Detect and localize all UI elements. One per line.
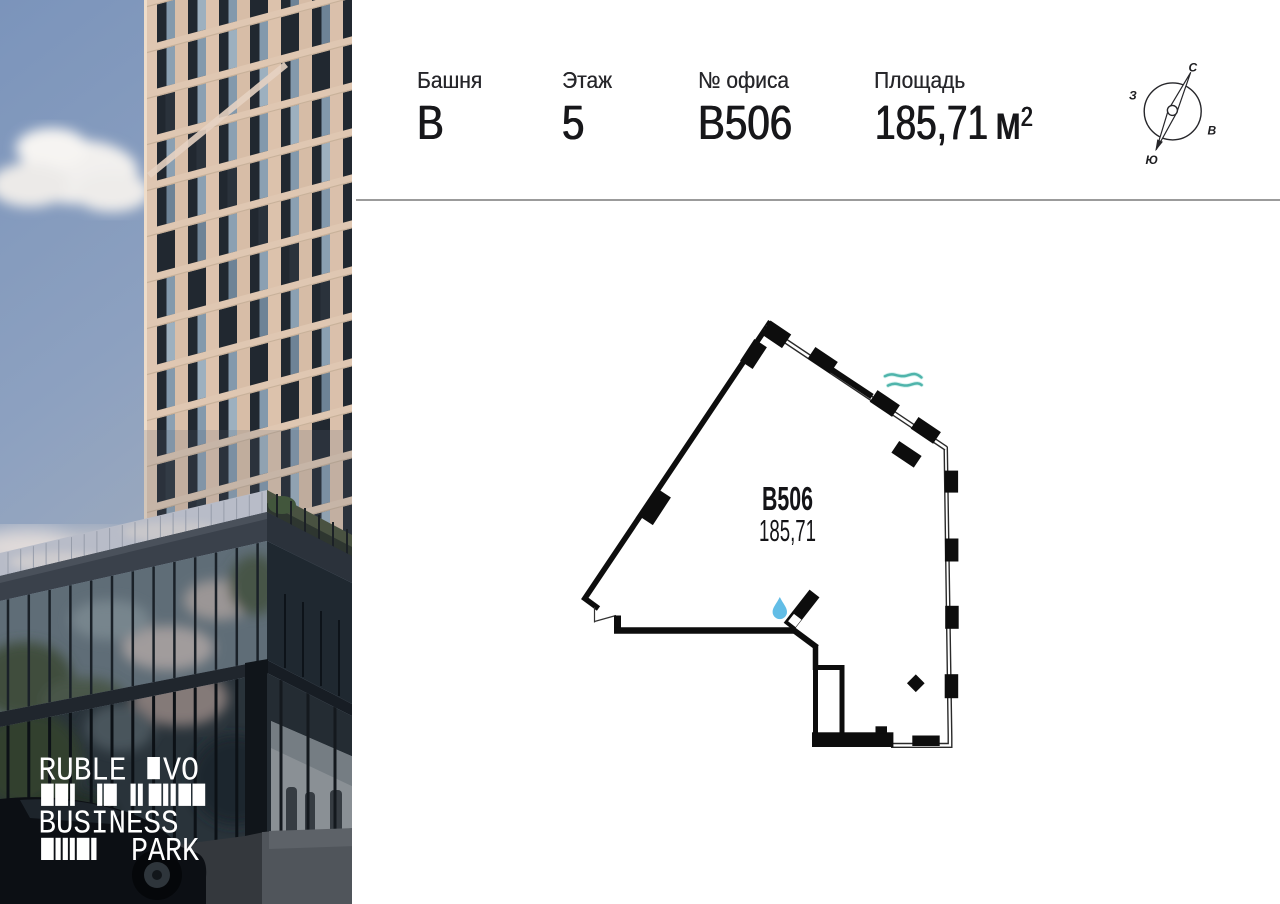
svg-text:С: С [1189,61,1198,75]
svg-text:В: В [1208,124,1217,138]
svg-text:185,71: 185,71 [759,513,816,548]
svg-text:В506: В506 [762,480,813,517]
svg-text:Ю: Ю [1146,153,1159,167]
svg-text:З: З [1129,89,1137,103]
svg-text:PARK: PARK [131,833,200,871]
